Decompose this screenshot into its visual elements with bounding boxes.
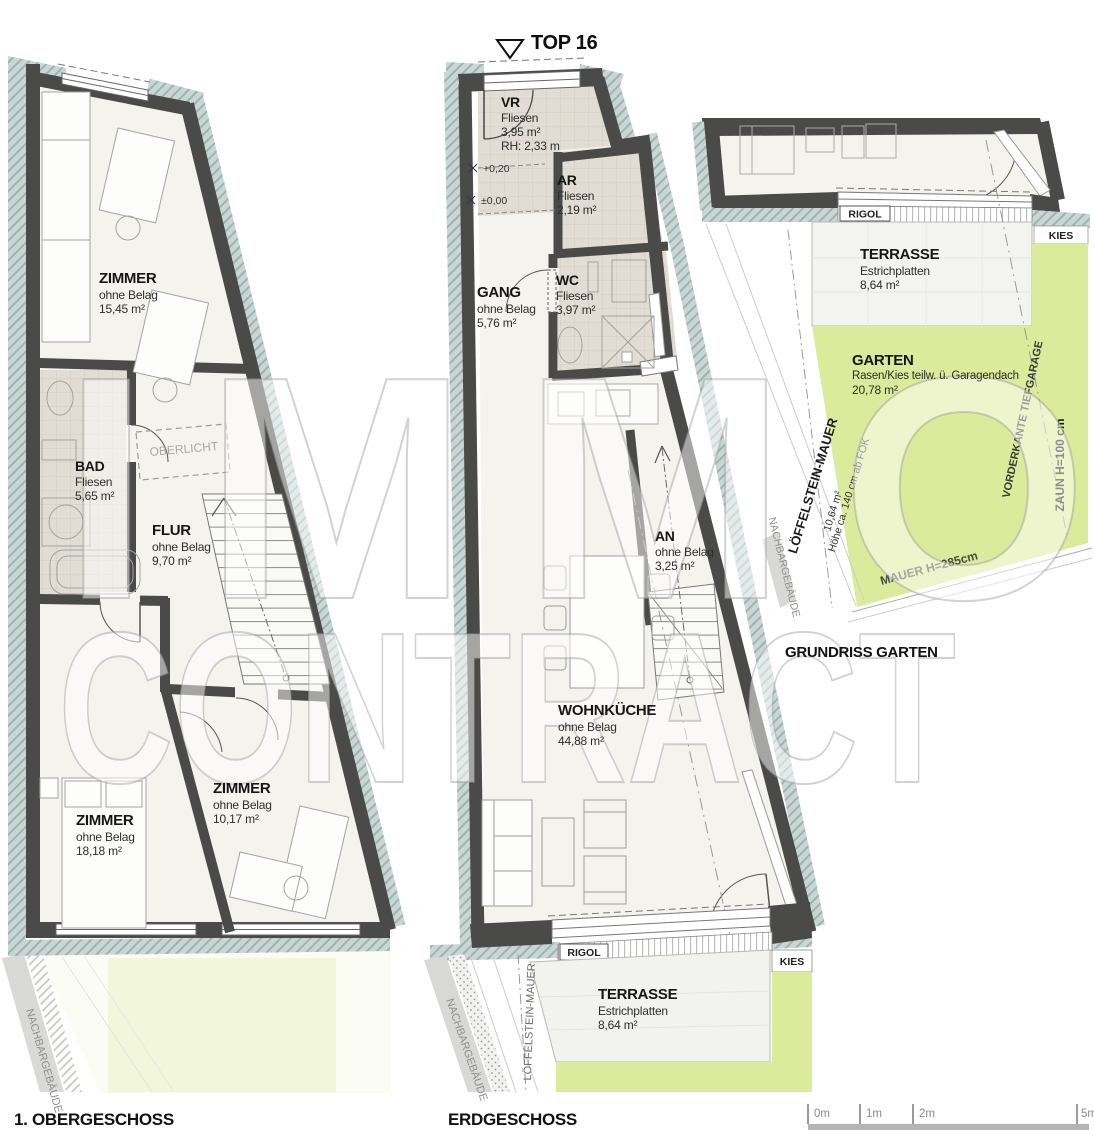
room-label-zimmer-1017: ZIMMER ohne Belag 10,17 m²	[213, 780, 272, 826]
room-label-flur: FLUR ohne Belag 9,70 m²	[152, 522, 211, 568]
scale-2m: 2m	[919, 1108, 935, 1120]
room-label-vr: VR Fliesen 3,95 m² RH: 2,33 m	[501, 94, 560, 153]
scale-bar: 0m 1m 2m 5m	[808, 1104, 1094, 1130]
room-label-zimmer-1818: ZIMMER ohne Belag 18,18 m²	[76, 812, 135, 858]
room-label-wc: WC Fliesen 3,97 m²	[556, 272, 595, 317]
room-label-an: AN ohne Belag 3,25 m²	[655, 528, 714, 573]
room-label-ar: AR Fliesen 2,19 m²	[557, 172, 596, 217]
garden-rigol-label: RIGOL	[848, 209, 882, 221]
title-grundriss-garten: GRUNDRISS GARTEN	[785, 644, 938, 661]
room-label-gang: GANG ohne Belag 5,76 m²	[477, 284, 536, 330]
room-label-wohnkueche: WOHNKÜCHE ohne Belag 44,88 m²	[558, 702, 656, 748]
room-label-bad: BAD Fliesen 5,65 m²	[75, 458, 114, 503]
scale-0m: 0m	[814, 1108, 830, 1120]
ground-loeffelstein-label: LÖFFELSTEIN-MAUER	[522, 963, 538, 1081]
ground-rigol-label: RIGOL	[567, 947, 601, 959]
scale-5m: 5m	[1081, 1108, 1094, 1120]
scale-1m: 1m	[866, 1108, 882, 1120]
floorplan-drawing: OBERLICHT NACHBARGEBÄUDE	[0, 0, 1094, 1136]
garden-kies-label: KIES	[1049, 230, 1074, 242]
room-label-zimmer-1545: ZIMMER ohne Belag 15,45 m²	[99, 270, 158, 316]
watermark-line2: CONTRACT	[58, 587, 956, 828]
title-erdgeschoss: ERDGESCHOSS	[448, 1110, 577, 1130]
floorplan-canvas: OBERLICHT NACHBARGEBÄUDE	[0, 0, 1094, 1136]
level-zero-label: ±0,00	[481, 195, 507, 207]
room-label-terrasse-eg: TERRASSE Estrichplatten 8,64 m²	[598, 986, 677, 1032]
room-label-garten: GARTEN Rasen/Kies teilw. ü. Garagendach …	[852, 352, 1019, 397]
room-label-terrasse-garten: TERRASSE Estrichplatten 8,64 m²	[860, 246, 939, 292]
level-entry-label: +0,20	[483, 163, 510, 175]
title-obergeschoss: 1. OBERGESCHOSS	[14, 1110, 174, 1130]
north-triangle-icon	[497, 40, 523, 58]
unit-label: TOP 16	[531, 32, 597, 55]
ground-kies-label: KIES	[780, 956, 805, 968]
